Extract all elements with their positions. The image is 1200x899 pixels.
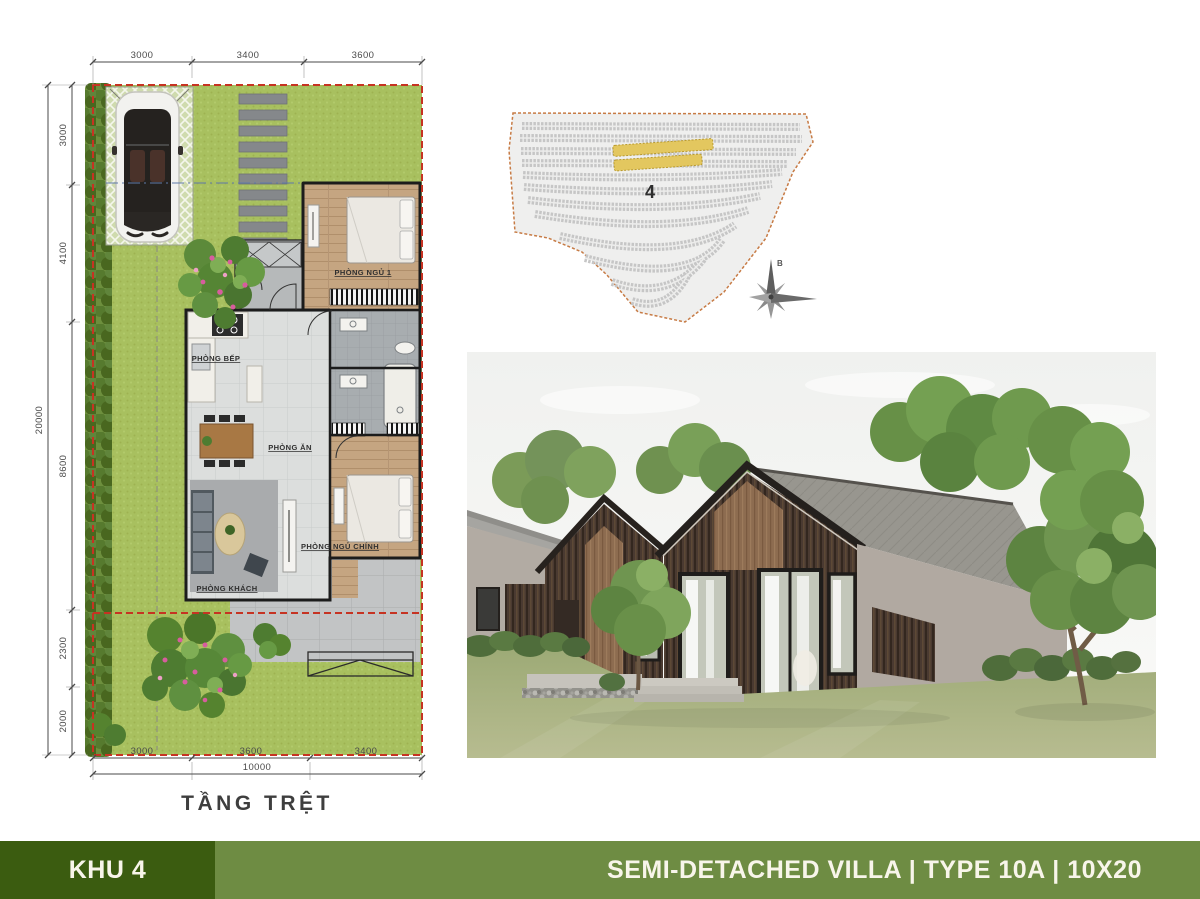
dim-top-1: 3000: [131, 50, 154, 61]
floor-plan: 3000 3400 3600 3000 4100 8600 2300 2000 …: [30, 40, 460, 830]
compass-rose-icon: [743, 259, 817, 325]
site-map: 4 B: [488, 95, 823, 335]
car-top-view-icon: [112, 92, 183, 242]
room-label-living: PHÒNG KHÁCH: [196, 584, 257, 593]
room-label-dining: PHÒNG ĂN: [268, 443, 312, 452]
footer-zone-badge: KHU 4: [0, 841, 215, 899]
footer-villa-type: SEMI-DETACHED VILLA | TYPE 10A | 10X20: [215, 841, 1200, 899]
dim-bottom-2: 3600: [240, 746, 263, 757]
footer-bar: KHU 4 SEMI-DETACHED VILLA | TYPE 10A | 1…: [0, 841, 1200, 899]
villa-render: [467, 352, 1156, 758]
dim-top-2: 3400: [237, 50, 260, 61]
floor-plan-title: TẦNG TRỆT: [181, 791, 333, 815]
dim-left-total: 20000: [34, 406, 45, 434]
site-map-zone-number: 4: [645, 182, 655, 202]
dim-left-3: 8600: [58, 455, 69, 478]
dim-left-2: 4100: [58, 242, 69, 265]
dim-left-5: 2000: [58, 710, 69, 733]
brochure-page: 3000 3400 3600 3000 4100 8600 2300 2000 …: [0, 0, 1200, 899]
dim-left-4: 2300: [58, 637, 69, 660]
footer-zone-label: KHU 4: [69, 856, 147, 885]
room-label-bedroom1: PHÒNG NGỦ 1: [335, 268, 392, 277]
dim-left-1: 3000: [58, 124, 69, 147]
room-label-master-bedroom: PHÒNG NGỦ CHÍNH: [301, 542, 379, 551]
dim-bottom-3: 3400: [355, 746, 378, 757]
dim-bottom-1: 3000: [131, 746, 154, 757]
compass-north-label: B: [777, 259, 783, 268]
dim-top-3: 3600: [352, 50, 375, 61]
terrace-wood-strip: [332, 560, 358, 598]
footer-villa-type-label: SEMI-DETACHED VILLA | TYPE 10A | 10X20: [607, 856, 1142, 885]
dim-bottom-total: 10000: [243, 762, 271, 773]
room-label-kitchen: PHÒNG BẾP: [192, 353, 241, 363]
